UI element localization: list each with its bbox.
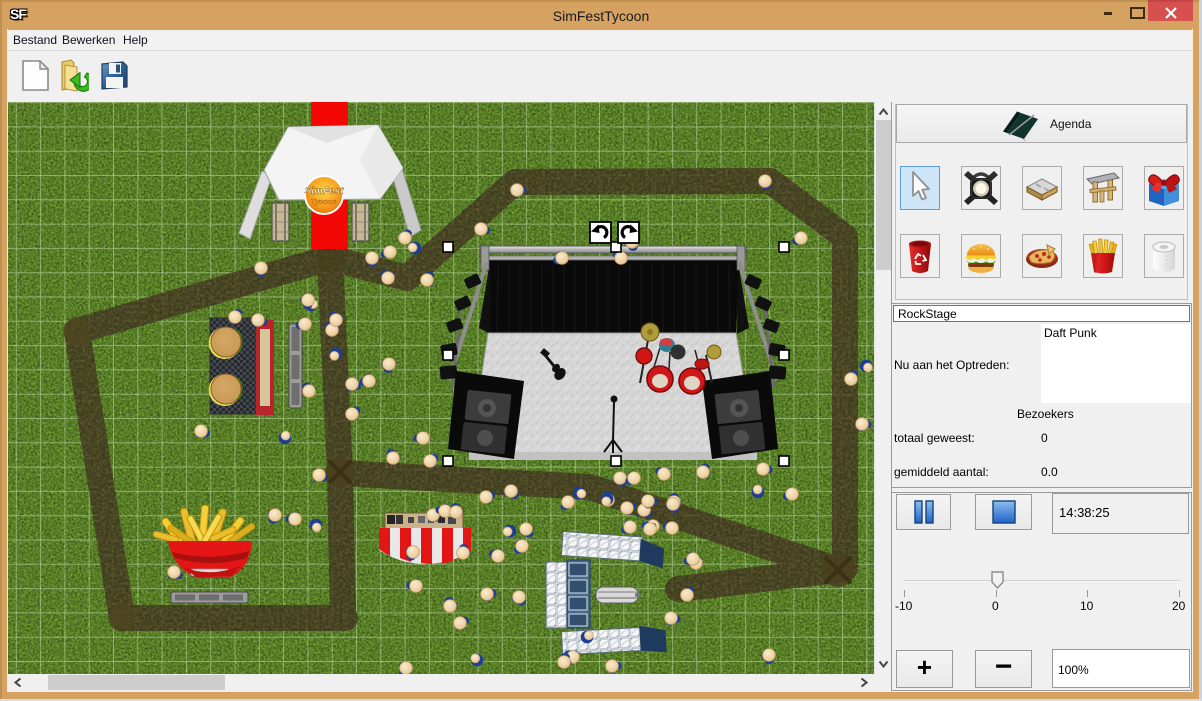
svg-text:SimFest: SimFest xyxy=(305,186,345,197)
svg-text:Tycoon: Tycoon xyxy=(311,197,338,206)
